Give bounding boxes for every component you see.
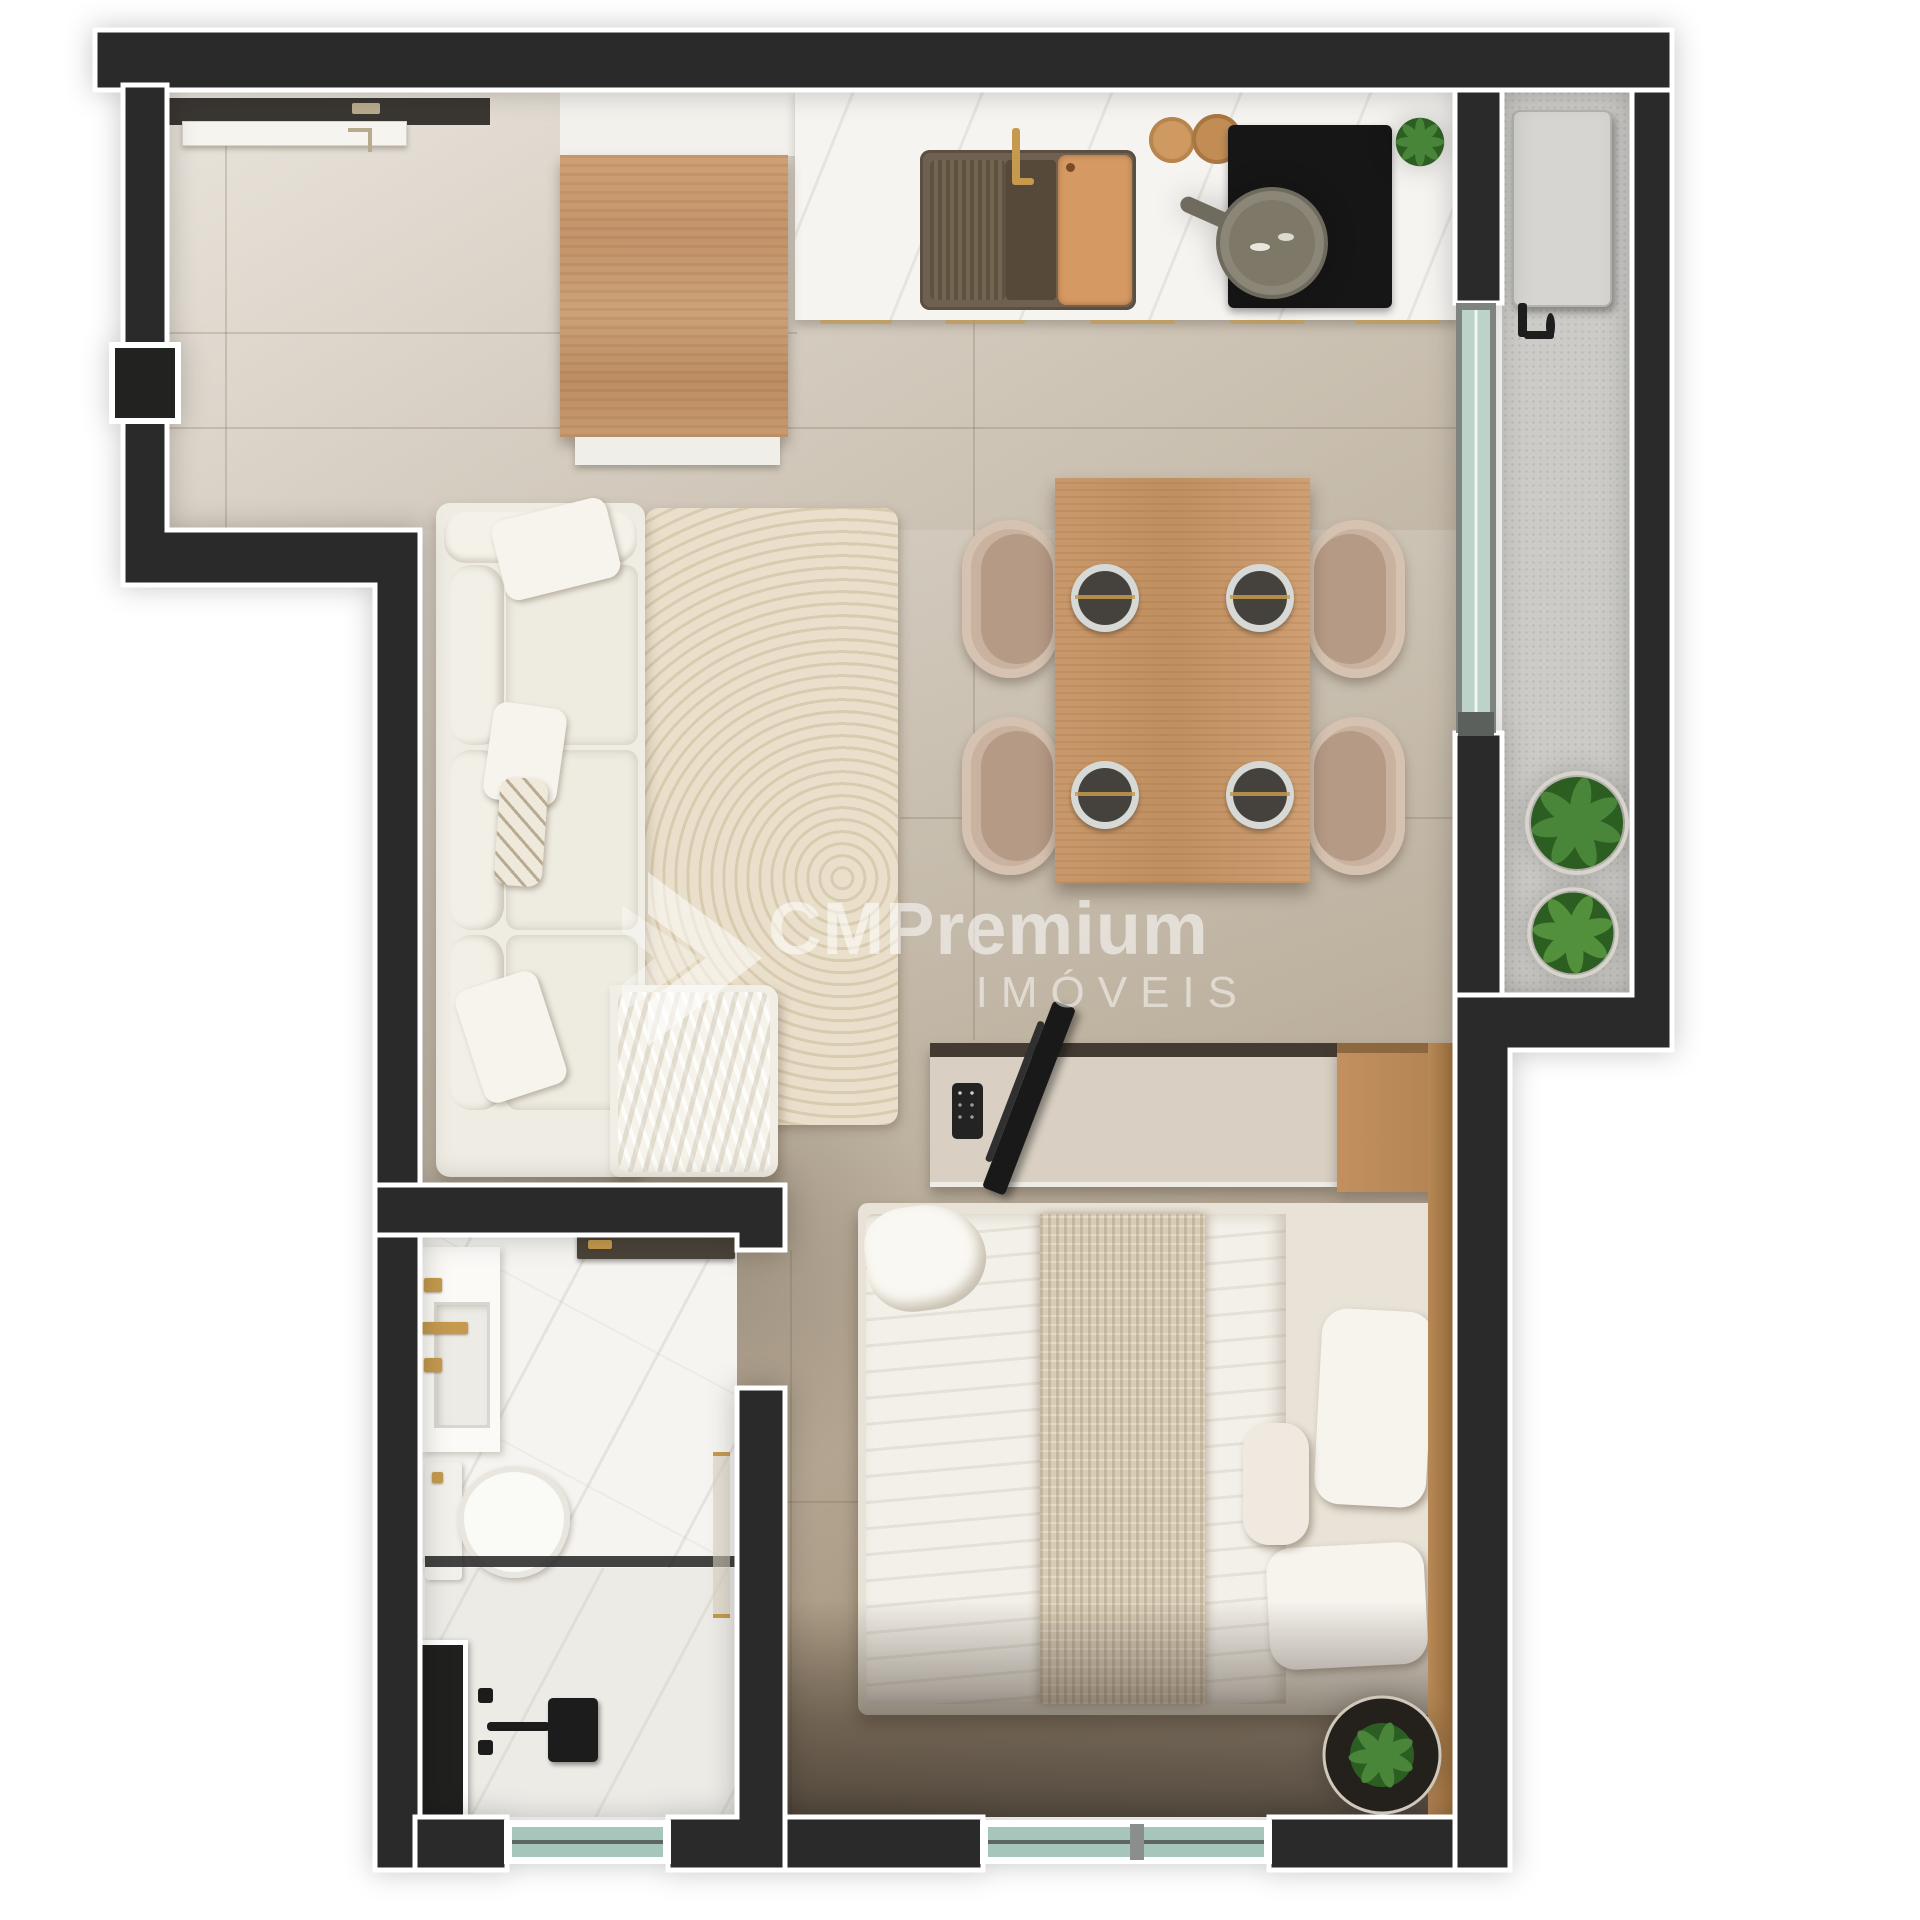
shower-floor xyxy=(425,1568,735,1817)
remote-control xyxy=(952,1083,983,1139)
tile-line xyxy=(167,427,1457,429)
toilet-flush-button xyxy=(432,1472,443,1483)
bedroom-floor-shadow xyxy=(783,1600,1455,1817)
counter-trim xyxy=(1355,320,1440,324)
counter-trim xyxy=(945,320,1025,324)
dining-chair xyxy=(962,520,1059,678)
place-setting xyxy=(1226,761,1294,829)
place-setting xyxy=(1071,564,1139,632)
counter-trim xyxy=(1230,320,1305,324)
sink-drainboard xyxy=(930,160,1006,300)
water-heater xyxy=(1512,110,1612,307)
bed-accent-pillow xyxy=(1243,1423,1309,1545)
shower-glass-panel xyxy=(713,1452,730,1618)
entry-door-handle-icon xyxy=(352,103,380,114)
entry-door-handle-icon xyxy=(348,128,372,152)
bedroom-window xyxy=(980,1820,1272,1864)
chevron-pillow xyxy=(493,776,548,887)
heater-pipes xyxy=(1518,303,1562,349)
entry-door-leaf xyxy=(182,121,407,146)
wall-top xyxy=(95,30,1672,90)
wood-floor-strip xyxy=(1428,1043,1455,1817)
watermark-subtitle: IMÓVEIS xyxy=(768,968,1250,1018)
shower-head xyxy=(548,1698,598,1762)
floor-plan: CMPremium IMÓVEIS xyxy=(0,0,1920,1920)
throw-blanket xyxy=(618,992,770,1172)
wall-bottom-c xyxy=(1269,1817,1455,1870)
shower-valve-icon xyxy=(478,1740,493,1755)
kitchen-backsplash xyxy=(560,88,800,156)
kitchen-cabinet xyxy=(560,155,788,437)
faucet-handle-icon xyxy=(424,1278,442,1292)
dining-chair xyxy=(962,717,1059,875)
shower-arm xyxy=(487,1722,550,1731)
vanity-basin xyxy=(434,1302,490,1428)
cooktop xyxy=(1228,125,1392,308)
dining-chair xyxy=(1308,520,1405,678)
watermark-brand: CMPremium xyxy=(768,886,1250,971)
balcony-glass-door xyxy=(1456,303,1496,736)
tv-console-edge xyxy=(930,1043,1337,1057)
wall-balcony xyxy=(1455,733,1502,995)
wall-bottom-b xyxy=(785,1817,983,1870)
kitchen-cabinet-ledge xyxy=(575,437,780,465)
bed-pillow xyxy=(1313,1307,1435,1509)
round-serving-board xyxy=(1149,117,1195,163)
door-handle-icon xyxy=(588,1240,612,1249)
shower-valve-icon xyxy=(478,1688,493,1703)
kitchen-faucet-icon xyxy=(1012,128,1020,184)
tile-line xyxy=(783,1501,868,1503)
place-setting xyxy=(1226,564,1294,632)
kitchen-faucet-icon xyxy=(1012,178,1034,185)
wall-kitchen-service xyxy=(1455,90,1502,303)
counter-trim xyxy=(820,320,892,324)
place-setting xyxy=(1071,761,1139,829)
counter-trim xyxy=(1090,320,1175,324)
tile-line xyxy=(225,100,227,530)
cutting-board xyxy=(1058,155,1132,305)
bathroom-window xyxy=(504,1820,671,1864)
faucet-spout-icon xyxy=(422,1322,468,1334)
shower-glass-partition xyxy=(425,1556,736,1567)
faucet-handle-icon xyxy=(424,1358,442,1372)
dining-chair xyxy=(1308,717,1405,875)
shower-window xyxy=(410,1640,468,1828)
